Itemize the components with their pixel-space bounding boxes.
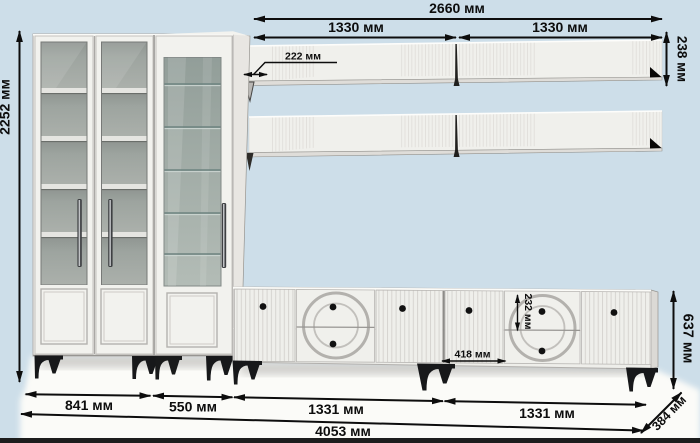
svg-text:637 мм: 637 мм — [680, 314, 696, 364]
svg-text:418 мм: 418 мм — [455, 349, 491, 361]
svg-text:1330 мм: 1330 мм — [532, 19, 588, 35]
svg-text:1330 мм: 1330 мм — [328, 19, 384, 35]
svg-text:2660 мм: 2660 мм — [429, 0, 485, 16]
svg-text:2252 мм: 2252 мм — [0, 79, 13, 135]
svg-text:1331 мм: 1331 мм — [308, 401, 364, 417]
svg-text:4053 мм: 4053 мм — [315, 423, 371, 439]
svg-text:1331 мм: 1331 мм — [519, 405, 575, 421]
svg-text:232 мм: 232 мм — [522, 294, 534, 330]
svg-text:222 мм: 222 мм — [285, 51, 321, 63]
svg-text:238 мм: 238 мм — [675, 36, 690, 82]
svg-text:841 мм: 841 мм — [65, 397, 113, 413]
svg-text:550 мм: 550 мм — [169, 399, 217, 415]
